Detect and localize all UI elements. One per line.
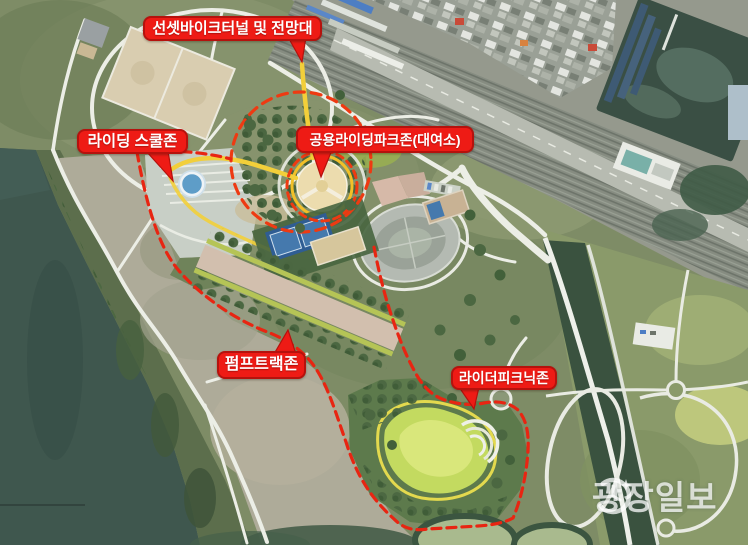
satellite-imagery: [0, 0, 748, 545]
label-riding-school-zone: 라이딩 스쿨존: [77, 129, 188, 154]
label-rider-picnic-zone: 라이더피크닉존: [451, 366, 557, 390]
label-sunset-bike-tunnel: 선셋바이크터널 및 전망대: [143, 16, 322, 41]
label-text: 공용라이딩파크존(대여소): [309, 133, 460, 147]
fountain-pond: [181, 173, 203, 195]
label-text: 라이더피크닉존: [459, 371, 549, 385]
roundabout: [658, 520, 674, 536]
label-public-riding-park-zone: 공용라이딩파크존(대여소): [296, 126, 474, 153]
roundabout: [668, 382, 685, 399]
label-text: 라이딩 스쿨존: [88, 134, 178, 150]
building: [728, 85, 748, 140]
roundabout: [491, 389, 511, 409]
label-text: 펌프트랙존: [225, 357, 299, 373]
label-pump-track-zone: 펌프트랙존: [217, 351, 306, 379]
aerial-park-map: 선셋바이크터널 및 전망대 라이딩 스쿨존 공용라이딩파크존(대여소) 펌프트랙…: [0, 0, 748, 545]
label-text: 선셋바이크터널 및 전망대: [152, 21, 312, 36]
